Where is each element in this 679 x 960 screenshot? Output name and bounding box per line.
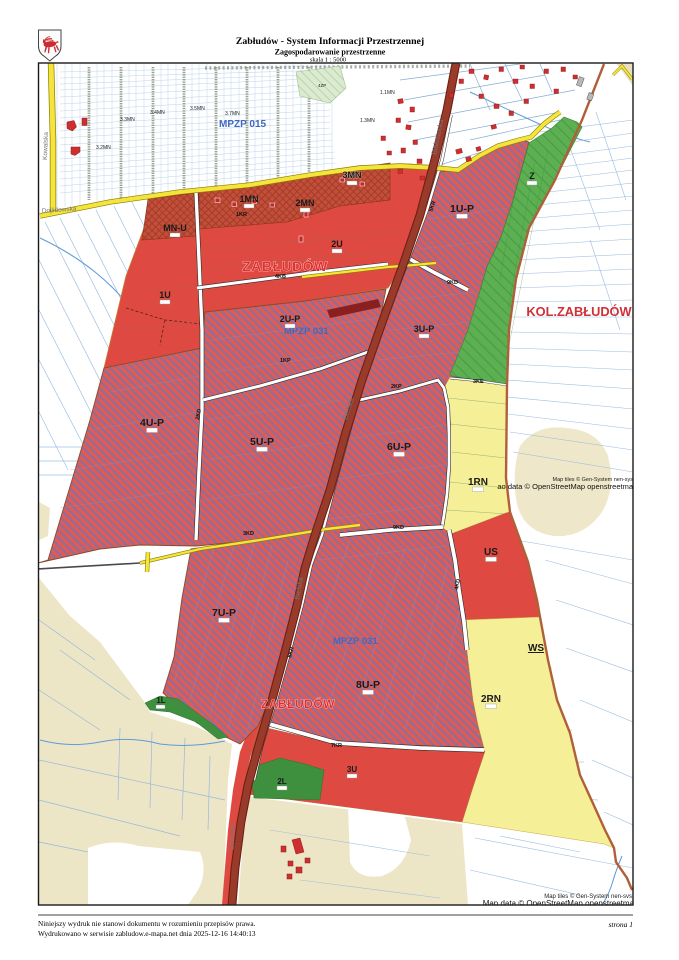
svg-text:2KP: 2KP [391, 384, 402, 390]
svg-text:6U-P: 6U-P [387, 441, 411, 453]
svg-text:Wydrukowano w serwisie zabludo: Wydrukowano w serwisie zabludow.e-mapa.n… [38, 929, 256, 938]
svg-text:MN-U: MN-U [163, 223, 187, 233]
svg-text:2RN: 2RN [481, 694, 501, 705]
svg-text:ao data © OpenStreetMap openst: ao data © OpenStreetMap openstreetma [497, 482, 633, 491]
svg-text:Kowalska: Kowalska [42, 132, 50, 160]
svg-text:3.2MN: 3.2MN [96, 145, 111, 151]
svg-text:MPZP 015: MPZP 015 [219, 119, 266, 130]
svg-text:3KD: 3KD [243, 531, 254, 537]
svg-text:5U-P: 5U-P [250, 436, 274, 448]
svg-text:4ZP: 4ZP [318, 83, 326, 88]
svg-text:1U-P: 1U-P [450, 203, 474, 215]
svg-text:2U: 2U [331, 239, 343, 249]
svg-text:ZABŁUDÓW: ZABŁUDÓW [242, 257, 328, 274]
svg-text:3.4MN: 3.4MN [150, 110, 165, 116]
svg-text:Z: Z [529, 171, 535, 181]
svg-text:1U: 1U [159, 290, 171, 300]
svg-text:4KB: 4KB [275, 274, 286, 280]
svg-text:9KD: 9KD [393, 525, 404, 531]
svg-text:3U-P: 3U-P [414, 324, 435, 334]
svg-text:7U-P: 7U-P [212, 607, 236, 619]
svg-text:8U-P: 8U-P [356, 679, 380, 691]
svg-text:strona 1: strona 1 [608, 920, 633, 929]
svg-text:4U-P: 4U-P [140, 417, 164, 429]
svg-text:MPZP 031: MPZP 031 [333, 636, 378, 647]
svg-text:7KR: 7KR [331, 743, 342, 749]
svg-text:3U: 3U [347, 765, 357, 774]
svg-text:2U-P: 2U-P [280, 314, 301, 324]
svg-text:1.1MN: 1.1MN [380, 90, 395, 96]
svg-text:1RN: 1RN [468, 477, 488, 488]
svg-text:KOL.ZABŁUDÓW: KOL.ZABŁUDÓW [526, 304, 632, 319]
svg-text:1.3MN: 1.3MN [360, 118, 375, 124]
svg-text:Zabłudów - System Informacji P: Zabłudów - System Informacji Przestrzenn… [236, 36, 424, 47]
svg-text:3.7MN: 3.7MN [225, 111, 240, 117]
svg-text:1MN: 1MN [239, 194, 258, 204]
svg-text:US: US [484, 547, 498, 558]
svg-text:1L: 1L [156, 696, 165, 705]
svg-text:Niniejszy wydruk nie stanowi d: Niniejszy wydruk nie stanowi dokumentu w… [38, 919, 256, 928]
svg-text:9KD: 9KD [447, 280, 458, 286]
svg-text:Solnicka: Solnicka [229, 823, 237, 850]
svg-text:Zagospodarowanie przestrzenne: Zagospodarowanie przestrzenne [275, 48, 386, 57]
svg-text:3.5MN: 3.5MN [190, 106, 205, 112]
svg-text:1KR: 1KR [236, 212, 247, 218]
svg-text:ZABŁUDÓW: ZABŁUDÓW [261, 696, 335, 711]
svg-text:3.3MN: 3.3MN [120, 117, 135, 123]
svg-text:3MN: 3MN [342, 170, 361, 180]
svg-text:1KP: 1KP [280, 358, 291, 364]
svg-text:3KE: 3KE [473, 379, 484, 385]
svg-text:2L: 2L [277, 777, 286, 786]
svg-text:2MN: 2MN [295, 198, 314, 208]
svg-text:WS: WS [528, 643, 544, 654]
